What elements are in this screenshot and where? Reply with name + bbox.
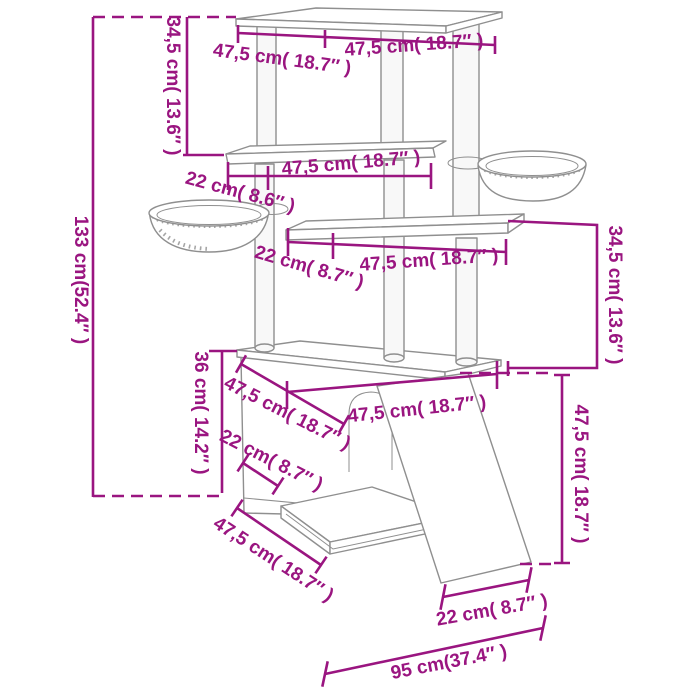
dim-label-mid-height: 34,5 cm( 13.6″ )	[603, 225, 625, 364]
dim-label-ramp-height: 47,5 cm( 18.7″ )	[569, 404, 591, 543]
dim-label-total-height: 133 cm(52.4″ )	[69, 216, 91, 344]
dim-label-upper-height: 34,5 cm( 13.6″ )	[161, 16, 183, 155]
dim-label-condo-height: 36 cm( 14.2″ )	[189, 351, 211, 474]
cat-tree-illustration	[0, 0, 700, 700]
platform-3	[286, 214, 524, 240]
diagram-canvas: 47,5 cm( 18.7″ ) 47,5 cm( 18.7″ ) 34,5 c…	[0, 0, 700, 700]
